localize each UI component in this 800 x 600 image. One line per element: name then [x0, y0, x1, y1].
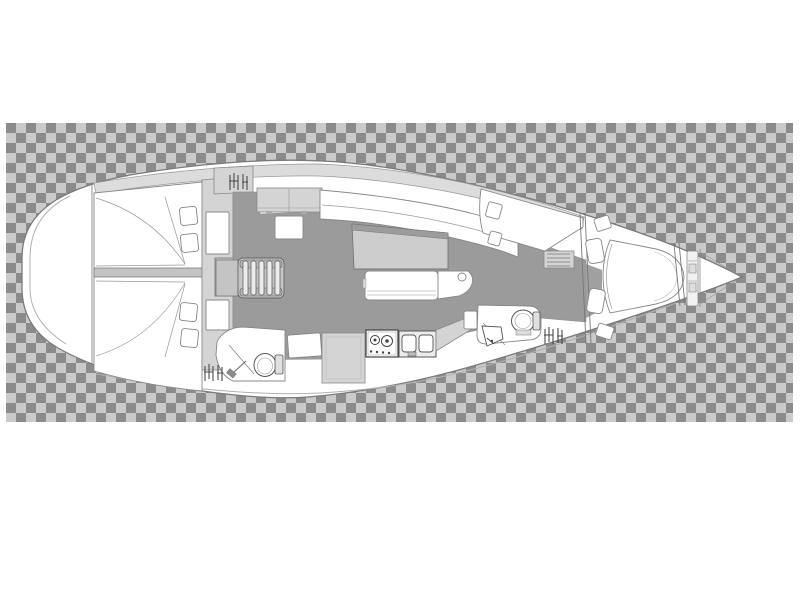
pillow [179, 206, 198, 226]
galley-cabinet [322, 333, 365, 383]
aft-cabins [94, 182, 202, 391]
galley-counter-sink [287, 333, 322, 358]
salon-settee-center [363, 271, 438, 300]
aft-cabin-divider [94, 268, 202, 277]
shower-seat [464, 311, 477, 329]
boat-floorplan-image [0, 0, 800, 600]
faucet [408, 352, 416, 356]
pillow [180, 233, 199, 253]
locker-box [275, 216, 303, 239]
anchor-windlass [687, 251, 698, 306]
toilet-tank [533, 312, 540, 330]
shelf-locker [544, 251, 574, 268]
aft-head [216, 327, 285, 381]
table-leg-fitting [458, 273, 466, 281]
step-platform [216, 260, 238, 296]
pillow [180, 328, 199, 348]
pillow [179, 302, 198, 322]
galley-sinks [399, 331, 436, 357]
floorplan-svg [0, 0, 800, 600]
galley-stove [366, 330, 398, 357]
companionway-steps [216, 258, 284, 298]
toilet-tank [275, 355, 283, 374]
